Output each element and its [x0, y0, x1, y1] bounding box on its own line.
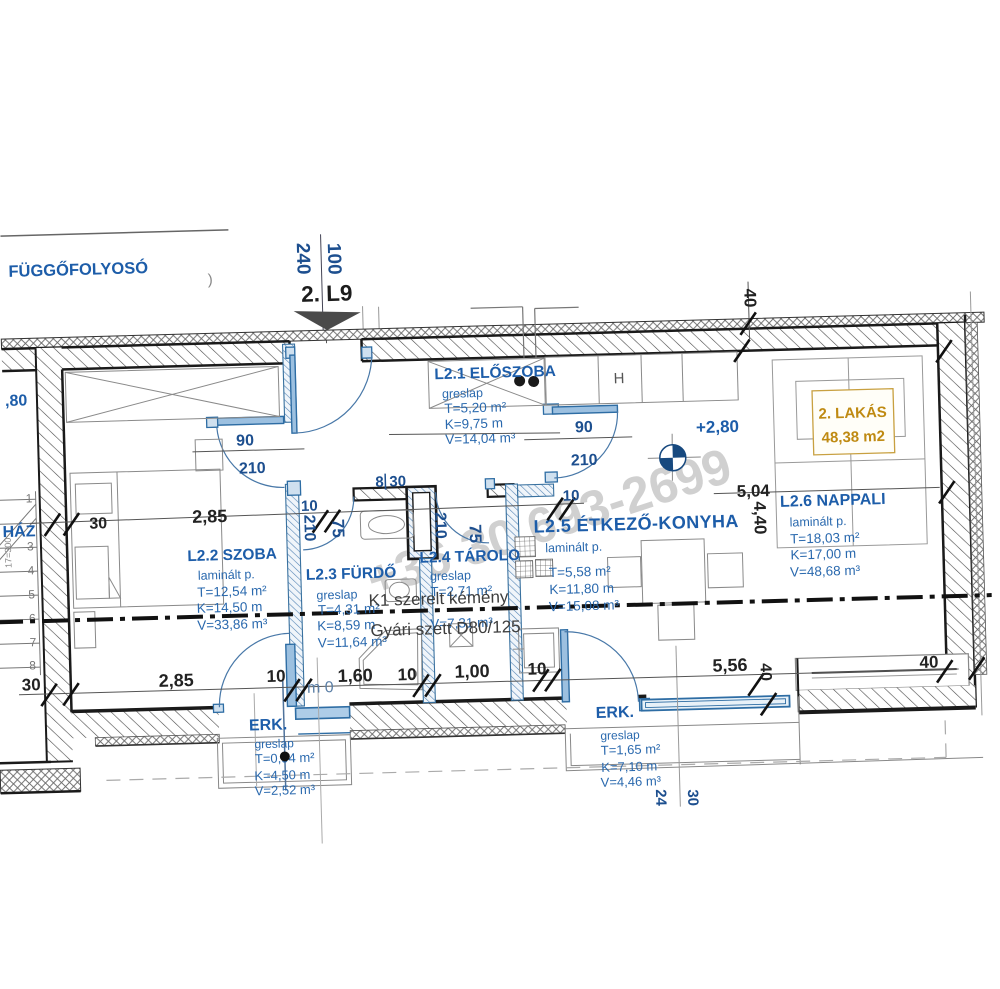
svg-text:8: 8: [375, 474, 384, 491]
svg-text:greslap: greslap: [316, 587, 357, 602]
svg-text:,80: ,80: [5, 392, 28, 410]
svg-text:30: 30: [684, 789, 701, 806]
svg-text:90: 90: [236, 432, 254, 449]
svg-text:T=1,65 m²: T=1,65 m²: [601, 741, 662, 758]
svg-text:24: 24: [652, 789, 669, 807]
svg-text:1,60: 1,60: [337, 665, 373, 686]
svg-text:ERK.: ERK.: [596, 704, 635, 722]
svg-text:): ): [208, 271, 213, 288]
svg-text:5: 5: [28, 587, 35, 601]
svg-text:8: 8: [29, 658, 36, 672]
svg-text:4: 4: [27, 563, 34, 577]
svg-text:laminált p.: laminált p.: [789, 514, 846, 530]
svg-text:30: 30: [389, 473, 406, 490]
svg-text:10: 10: [527, 659, 546, 679]
svg-text:K=4,50 m: K=4,50 m: [254, 767, 310, 784]
svg-text:L2.1 ELŐSZOBA: L2.1 ELŐSZOBA: [434, 362, 556, 383]
svg-text:5,56: 5,56: [712, 655, 748, 676]
svg-text:10: 10: [563, 487, 580, 504]
svg-text:90: 90: [575, 419, 593, 436]
svg-text:V=4,46 m³: V=4,46 m³: [600, 773, 661, 790]
svg-text:HÁZ: HÁZ: [2, 521, 36, 541]
svg-text:greslap: greslap: [254, 736, 294, 751]
svg-text:T=5,20 m²: T=5,20 m²: [444, 399, 507, 416]
svg-text:75: 75: [466, 524, 486, 543]
svg-text:+2,80: +2,80: [696, 417, 740, 437]
svg-text:H: H: [613, 370, 624, 387]
svg-text:K=14,50 m: K=14,50 m: [197, 599, 263, 616]
svg-text:3: 3: [27, 539, 34, 553]
svg-text:2. LAKÁS: 2. LAKÁS: [818, 404, 887, 423]
svg-text:40: 40: [756, 663, 773, 681]
svg-text:T=5,58 m²: T=5,58 m²: [549, 563, 612, 580]
svg-text:L2.4 TÁROLO: L2.4 TÁROLO: [419, 547, 520, 567]
svg-text:m 0: m 0: [307, 679, 334, 697]
svg-text:V=14,04 m³: V=14,04 m³: [445, 430, 516, 447]
svg-text:FÜGGŐFOLYOSÓ: FÜGGŐFOLYOSÓ: [8, 258, 148, 281]
svg-text:30: 30: [89, 515, 107, 532]
svg-text:10: 10: [397, 665, 416, 685]
svg-text:L2.6 NAPPALI: L2.6 NAPPALI: [780, 491, 886, 511]
svg-text:240: 240: [292, 243, 314, 275]
svg-text:V=33,86 m³: V=33,86 m³: [197, 616, 268, 633]
svg-text:ERK.: ERK.: [249, 716, 288, 734]
svg-text:L2.2 SZOBA: L2.2 SZOBA: [187, 546, 277, 565]
svg-text:2,85: 2,85: [158, 670, 194, 691]
svg-text:K=8,59 m: K=8,59 m: [317, 617, 376, 634]
svg-text:laminált p.: laminált p.: [198, 567, 255, 583]
svg-text:V=2,52 m³: V=2,52 m³: [255, 782, 316, 799]
svg-text:1,00: 1,00: [454, 661, 490, 682]
svg-text:48,38 m2: 48,38 m2: [821, 428, 885, 447]
svg-text:T=18,03 m²: T=18,03 m²: [790, 530, 860, 547]
svg-text:1: 1: [25, 491, 32, 505]
svg-text:K1 szerelt kémény: K1 szerelt kémény: [368, 587, 509, 610]
svg-text:17=300: 17=300: [3, 538, 14, 569]
svg-text:7: 7: [29, 635, 36, 649]
svg-text:T=12,54 m²: T=12,54 m²: [197, 583, 267, 600]
svg-text:75: 75: [328, 519, 348, 538]
svg-text:2. L9: 2. L9: [301, 280, 353, 306]
svg-text:5,04: 5,04: [736, 481, 770, 501]
svg-text:10: 10: [266, 666, 285, 686]
svg-text:laminált p.: laminált p.: [545, 540, 602, 556]
svg-text:2,85: 2,85: [192, 506, 228, 527]
svg-text:100: 100: [323, 243, 345, 275]
svg-text:V=15,08 m³: V=15,08 m³: [549, 597, 620, 614]
svg-text:30: 30: [22, 675, 41, 695]
svg-text:210: 210: [431, 512, 449, 539]
svg-text:10: 10: [301, 497, 318, 514]
svg-text:40: 40: [740, 288, 760, 307]
svg-text:V=48,68 m³: V=48,68 m³: [790, 563, 861, 580]
svg-text:greslap: greslap: [600, 728, 640, 743]
svg-text:210: 210: [571, 452, 598, 470]
svg-text:K=9,75 m: K=9,75 m: [445, 415, 504, 432]
svg-text:greslap: greslap: [442, 386, 483, 401]
svg-text:K=7,10 m: K=7,10 m: [601, 758, 657, 775]
svg-text:K=11,80 m: K=11,80 m: [549, 580, 614, 597]
svg-text:L2.3 FÜRDŐ: L2.3 FÜRDŐ: [306, 563, 397, 583]
svg-text:210: 210: [300, 515, 318, 542]
svg-text:greslap: greslap: [430, 568, 471, 583]
svg-text:40: 40: [919, 653, 938, 673]
svg-text:K=17,00 m: K=17,00 m: [790, 546, 856, 563]
svg-text:210: 210: [239, 460, 266, 478]
svg-text:4,40: 4,40: [750, 501, 770, 535]
